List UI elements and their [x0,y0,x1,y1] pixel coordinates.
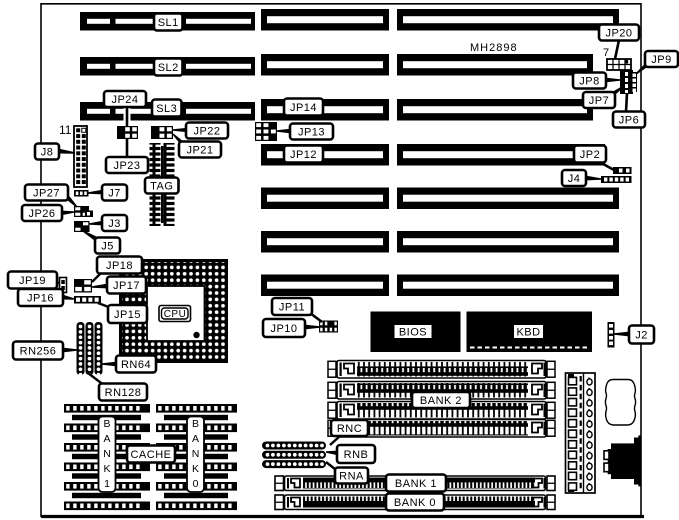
svg-text:RNB: RNB [344,449,369,461]
svg-text:JP23: JP23 [113,160,140,172]
svg-text:RNC: RNC [337,423,362,435]
svg-text:JP11: JP11 [279,301,305,313]
svg-text:KBD: KBD [516,326,540,338]
svg-text:BANK 2: BANK 2 [420,395,462,407]
svg-text:JP10: JP10 [270,323,297,335]
svg-text:JP19: JP19 [19,275,46,287]
svg-text:JP17: JP17 [113,280,140,292]
svg-text:JP13: JP13 [298,126,325,138]
svg-text:JP12: JP12 [290,149,317,161]
svg-text:J7: J7 [108,187,121,199]
svg-text:J8: J8 [41,146,54,158]
svg-text:1: 1 [104,478,110,490]
svg-text:CACHE: CACHE [130,449,171,461]
svg-text:JP27: JP27 [33,187,60,199]
svg-text:JP2: JP2 [580,149,600,161]
svg-text:SL2: SL2 [158,62,179,74]
svg-text:RN64: RN64 [121,359,151,371]
svg-text:SL1: SL1 [158,17,179,29]
svg-text:TAG: TAG [150,180,173,192]
svg-text:BIOS: BIOS [399,326,427,338]
svg-text:JP15: JP15 [114,309,141,321]
svg-text:N: N [192,448,200,460]
svg-text:RNA: RNA [339,470,364,482]
svg-text:MH2898: MH2898 [470,42,518,54]
svg-text:JP20: JP20 [605,27,632,39]
svg-text:B: B [103,418,110,430]
svg-text:SL3: SL3 [156,103,177,115]
svg-text:JP22: JP22 [193,125,220,137]
svg-text:K: K [103,463,110,475]
svg-text:BANK 1: BANK 1 [395,478,437,490]
svg-text:J5: J5 [101,240,114,252]
svg-text:JP24: JP24 [111,94,138,106]
svg-text:A: A [192,433,199,445]
svg-text:BANK 0: BANK 0 [394,497,436,509]
svg-text:JP6: JP6 [619,114,639,126]
svg-text:RN128: RN128 [105,387,142,399]
svg-text:7: 7 [603,47,609,59]
svg-text:RN256: RN256 [20,345,57,357]
svg-text:J3: J3 [108,218,121,230]
svg-text:N: N [103,448,111,460]
svg-text:JP8: JP8 [579,75,599,87]
svg-text:JP18: JP18 [106,260,133,272]
svg-text:A: A [103,433,110,445]
svg-text:B: B [192,418,199,430]
svg-text:JP21: JP21 [186,144,213,156]
svg-text:0: 0 [193,478,199,490]
svg-text:J2: J2 [635,329,648,341]
svg-text:11: 11 [59,123,72,137]
svg-text:JP14: JP14 [290,102,317,114]
svg-text:JP26: JP26 [28,208,55,220]
svg-text:JP9: JP9 [651,54,671,66]
svg-text:CPU: CPU [164,309,187,320]
svg-text:JP16: JP16 [27,292,54,304]
svg-text:J4: J4 [568,173,581,185]
svg-text:K: K [192,463,199,475]
svg-text:JP7: JP7 [589,95,609,107]
